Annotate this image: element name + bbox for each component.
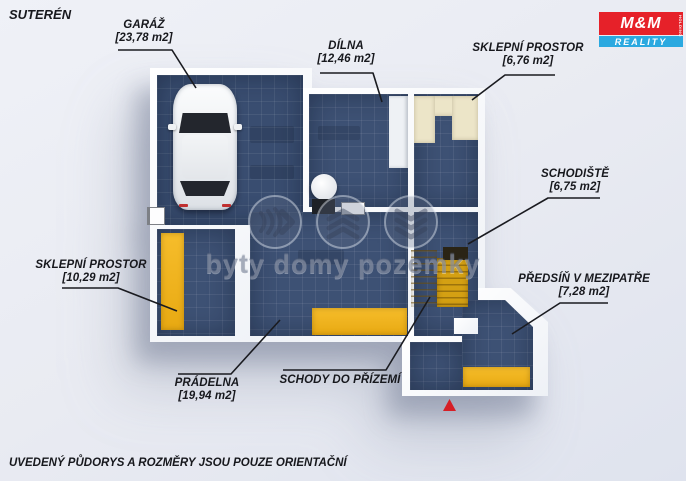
- cabinet-dilna: [389, 96, 408, 168]
- stairs-left-flight: [411, 250, 437, 307]
- room-label-schody: SCHODY DO PŘÍZEMÍ: [260, 374, 420, 387]
- room-area: [6,75 m2]: [515, 181, 635, 194]
- room-label-pradelna: PRÁDELNA [19,94 m2]: [148, 377, 266, 404]
- room-label-schodiste: SCHODIŠTĚ [6,75 m2]: [515, 168, 635, 195]
- room-label-dilna: DÍLNA [12,46 m2]: [286, 40, 406, 67]
- disclaimer-text: UVEDENÝ PŮDORYS A ROZMĚRY JSOU POUZE ORI…: [9, 457, 347, 469]
- floor-shadow-patch: [318, 126, 360, 140]
- car-taillight-left: [179, 204, 188, 207]
- cabinet-sklep-top-right: [452, 96, 478, 140]
- logo-mm-text: M&M: [620, 15, 661, 33]
- door-garaz-side: [147, 207, 165, 225]
- counter-pradelna: [312, 308, 407, 335]
- bench-predsin: [463, 367, 530, 387]
- room-name: GARÁŽ: [85, 19, 203, 32]
- floor-shadow-patch: [250, 126, 294, 143]
- logo-top-bar: M&M HOLDING: [599, 12, 683, 35]
- boiler-icon: [311, 174, 337, 200]
- cabinet-sklep-top-left: [414, 96, 435, 143]
- car-mirror-right: [234, 124, 242, 130]
- stairs-right-flight: [437, 258, 468, 307]
- door-dilna-pradelna: [341, 202, 365, 215]
- room-name: PŘEDSÍŇ V MEZIPATŘE: [494, 273, 674, 286]
- room-area: [23,78 m2]: [85, 32, 203, 45]
- mm-reality-logo: M&M HOLDING REALITY: [599, 12, 683, 47]
- room-area: [6,76 m2]: [448, 55, 608, 68]
- logo-reality-text: REALITY: [599, 36, 683, 47]
- wall-stub-predsin: [454, 318, 478, 334]
- room-name: SKLEPNÍ PROSTOR: [12, 259, 170, 272]
- room-label-sklep-left: SKLEPNÍ PROSTOR [10,29 m2]: [12, 259, 170, 286]
- car-windshield: [179, 113, 231, 133]
- room-name: SCHODIŠTĚ: [515, 168, 635, 181]
- room-name: DÍLNA: [286, 40, 406, 53]
- room-area: [12,46 m2]: [286, 53, 406, 66]
- boiler-stand: [312, 199, 335, 214]
- car-top-view: [173, 84, 237, 210]
- logo-side-text: HOLDING: [678, 15, 682, 37]
- room-label-sklep-top: SKLEPNÍ PROSTOR [6,76 m2]: [448, 42, 608, 69]
- car-taillight-right: [222, 204, 231, 207]
- floor-title: SUTERÉN: [9, 7, 71, 22]
- room-label-predsin: PŘEDSÍŇ V MEZIPATŘE [7,28 m2]: [494, 273, 674, 300]
- floor-shadow-patch: [250, 165, 294, 179]
- room-name: PRÁDELNA: [148, 377, 266, 390]
- room-area: [7,28 m2]: [494, 286, 674, 299]
- room-name: SCHODY DO PŘÍZEMÍ: [260, 374, 420, 387]
- stairs-landing: [443, 247, 468, 260]
- car-mirror-left: [168, 124, 176, 130]
- room-label-garaz: GARÁŽ [23,78 m2]: [85, 19, 203, 46]
- floorplan-canvas: byty domy pozemky SUTERÉN GARÁŽ [23,78 m…: [0, 0, 686, 481]
- car-roof: [182, 135, 228, 179]
- car-rear-window: [180, 181, 230, 196]
- room-name: SKLEPNÍ PROSTOR: [448, 42, 608, 55]
- room-area: [10,29 m2]: [12, 272, 170, 285]
- floor-shadow-patch: [298, 250, 344, 265]
- room-area: [19,94 m2]: [148, 390, 266, 403]
- building: [0, 0, 686, 481]
